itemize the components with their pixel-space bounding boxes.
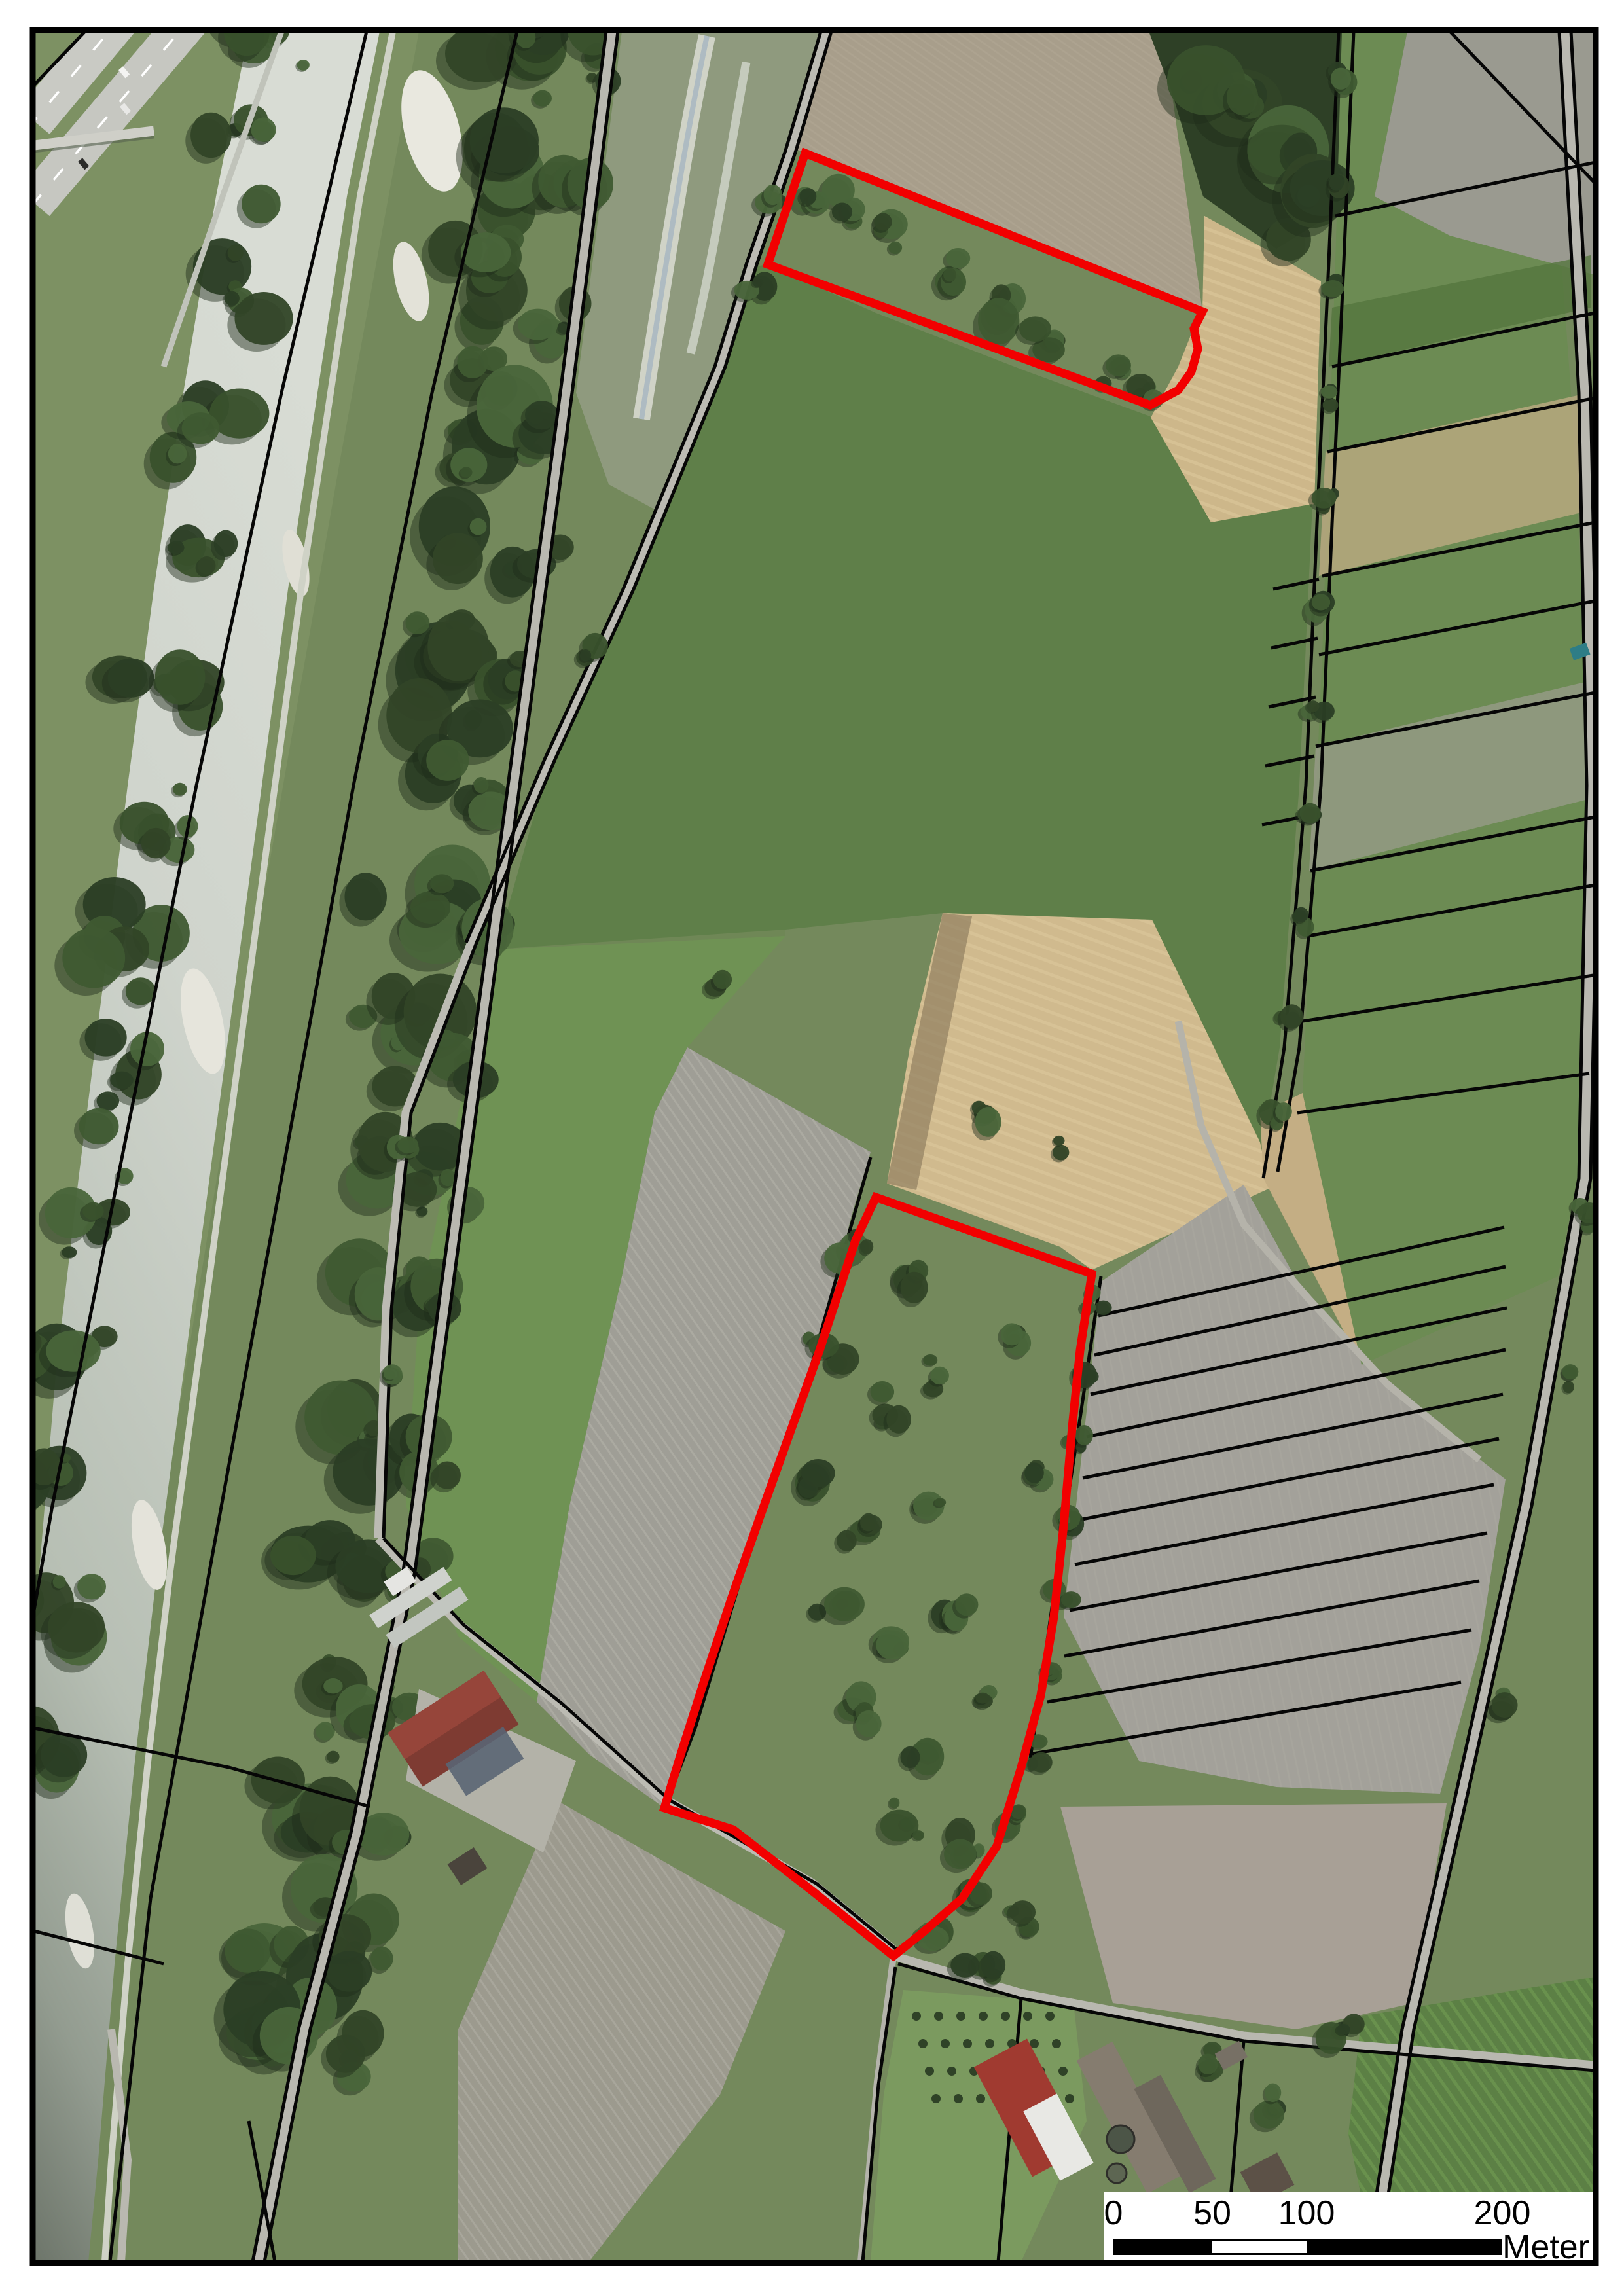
tree-canopy [1280, 1004, 1303, 1028]
slurry-tank [1107, 2125, 1134, 2153]
tree-canopy [141, 828, 171, 859]
tree-canopy [1254, 2101, 1284, 2129]
tree-canopy [946, 248, 970, 268]
tree-canopy [1322, 280, 1344, 297]
orchard-tree [934, 2012, 943, 2021]
tree-canopy [1265, 2084, 1281, 2102]
map-svg: 050100200 Meter [0, 0, 1624, 2295]
tree-canopy [944, 1839, 977, 1870]
tree-canopy [860, 1513, 876, 1532]
tree-canopy [912, 1830, 924, 1840]
tree-canopy [1094, 1301, 1111, 1315]
field-plowed-south [1060, 1803, 1447, 2029]
tree-canopy [1275, 1102, 1292, 1121]
page: 050100200 Meter [0, 0, 1624, 2295]
tree-canopy [923, 1354, 937, 1365]
tree-canopy [1323, 398, 1339, 412]
tree-canopy [426, 740, 469, 781]
orchard-tree [1052, 2039, 1061, 2048]
tree-canopy [713, 970, 732, 989]
tree-canopy [225, 1928, 270, 1972]
tree-canopy [1053, 1145, 1069, 1161]
tree-canopy [525, 401, 558, 429]
scalebar-bar [1113, 2239, 1502, 2255]
tree-canopy [190, 113, 232, 158]
tree-canopy [533, 90, 552, 107]
tree-canopy [935, 1498, 947, 1506]
tree-canopy [860, 1239, 873, 1254]
tree-canopy [77, 1574, 106, 1599]
orchard-tree [976, 2094, 985, 2103]
tree-canopy [981, 1951, 1006, 1979]
tree-canopy [901, 1746, 920, 1768]
tree-canopy [1312, 488, 1337, 509]
orchard-tree [985, 2039, 994, 2048]
tree-canopy [53, 1575, 66, 1589]
tree-canopy [457, 346, 488, 378]
tree-canopy [214, 530, 238, 557]
tree-canopy [955, 1593, 978, 1616]
tree-canopy [173, 783, 187, 796]
tree-canopy [155, 649, 206, 704]
slurry-tank [1107, 2163, 1127, 2183]
tree-canopy [889, 1798, 899, 1809]
tree-canopy [752, 279, 763, 287]
orchard-tree [912, 2012, 921, 2021]
tree-canopy [1019, 316, 1051, 342]
scalebar-tick-label: 100 [1278, 2194, 1335, 2232]
tree-canopy [97, 1091, 120, 1110]
tree-canopy [225, 291, 240, 306]
scalebar-tick-label: 0 [1104, 2194, 1123, 2232]
tree-canopy [242, 185, 280, 224]
tree-canopy [62, 928, 125, 988]
tree-canopy [397, 1136, 418, 1153]
tree-canopy [182, 412, 219, 444]
tree-canopy [580, 649, 591, 662]
tree-canopy [874, 213, 892, 230]
tree-canopy [1106, 354, 1131, 376]
orchard-tree [947, 2067, 956, 2076]
tree-canopy [251, 117, 276, 141]
tree-canopy [1001, 1323, 1023, 1345]
tree-canopy [1337, 2024, 1350, 2034]
tree-canopy [406, 611, 430, 634]
tree-canopy [46, 1330, 100, 1371]
tree-canopy [1075, 1425, 1093, 1445]
tree-canopy [430, 874, 454, 893]
tree-canopy [871, 1381, 895, 1402]
tree-canopy [1312, 594, 1330, 610]
orchard-tree [925, 2067, 934, 2076]
tree-canopy [876, 1631, 909, 1660]
scalebar: 050100200 Meter [1104, 2192, 1595, 2266]
orchard-tree [979, 2012, 988, 2021]
orchard-tree [1023, 2012, 1032, 2021]
tree-canopy [110, 1072, 134, 1089]
tree-canopy [1294, 907, 1308, 922]
tree-canopy [327, 1951, 372, 1991]
orchard-tree [1045, 2012, 1055, 2021]
tree-canopy [433, 533, 483, 584]
tree-canopy [943, 268, 956, 281]
tree-canopy [460, 467, 473, 477]
tree-canopy [930, 1367, 949, 1384]
tree-canopy [824, 1587, 865, 1621]
tree-canopy [978, 298, 1019, 344]
orchard-tree [956, 2012, 965, 2021]
tree-canopy [168, 541, 185, 554]
orchard-tree [1001, 2012, 1010, 2021]
tree-canopy [1061, 1591, 1081, 1608]
tree-canopy [975, 1107, 1001, 1137]
tree-canopy [410, 892, 450, 924]
tree-canopy [764, 185, 782, 205]
tree-canopy [370, 1947, 393, 1971]
tree-canopy [798, 1477, 818, 1498]
scalebar-tick-label: 50 [1193, 2194, 1231, 2232]
tree-canopy [1331, 68, 1351, 90]
tree-canopy [1321, 386, 1337, 399]
scalebar-segment [1113, 2241, 1212, 2253]
tree-canopy [270, 1536, 316, 1575]
tree-canopy [1024, 1462, 1044, 1483]
tree-canopy [1562, 1364, 1579, 1379]
tree-canopy [82, 1202, 104, 1220]
tree-canopy [126, 977, 156, 1005]
orchard-tree [931, 2094, 941, 2103]
tree-canopy [326, 2035, 365, 2073]
tree-canopy [837, 1530, 857, 1551]
tree-canopy [832, 203, 852, 221]
tree-canopy [1563, 1381, 1574, 1393]
tree-canopy [108, 659, 154, 698]
tree-canopy [1300, 803, 1321, 823]
tree-canopy [518, 309, 558, 340]
tree-canopy [1198, 2054, 1218, 2075]
tree-canopy [975, 1693, 989, 1704]
scalebar-tick-label: 200 [1474, 2194, 1531, 2232]
tree-canopy [41, 1733, 87, 1777]
tree-canopy [234, 292, 293, 345]
tree-canopy [470, 107, 539, 173]
scalebar-segment [1307, 2241, 1502, 2253]
tree-canopy [888, 242, 902, 254]
tree-canopy [1010, 1900, 1036, 1924]
tree-canopy [440, 1169, 455, 1186]
tree-canopy [323, 1678, 342, 1693]
tree-canopy [168, 444, 187, 463]
tree-canopy [856, 1710, 882, 1737]
tree-canopy [236, 0, 262, 14]
scalebar-segment [1212, 2241, 1307, 2253]
tree-canopy [470, 518, 487, 535]
tree-canopy [433, 1462, 460, 1489]
orchard-tree [1065, 2094, 1074, 2103]
tree-canopy [228, 244, 244, 261]
tree-canopy [1329, 175, 1344, 190]
tree-canopy [1030, 1752, 1052, 1773]
orchard-tree [1058, 2067, 1068, 2076]
tree-canopy [1307, 700, 1319, 712]
orchard-tree [918, 2039, 928, 2048]
orchard-tree [963, 2039, 972, 2048]
tree-canopy [384, 1368, 397, 1380]
tree-shadow [232, 0, 259, 16]
map-canvas[interactable]: 050100200 Meter [0, 0, 1601, 2266]
orchard-tree [954, 2094, 963, 2103]
tree-canopy [901, 1272, 928, 1303]
tree-canopy [84, 1019, 126, 1057]
tree-canopy [474, 777, 489, 793]
tree-canopy [800, 188, 817, 205]
orchard-tree [941, 2039, 950, 2048]
tree-canopy [198, 556, 215, 575]
tree-canopy [327, 1751, 339, 1763]
tree-canopy [297, 60, 310, 71]
tree-canopy [79, 1108, 119, 1144]
tree-canopy [48, 1602, 105, 1652]
tree-canopy [62, 1246, 77, 1258]
tree-canopy [344, 873, 386, 920]
tree-canopy [950, 1953, 979, 1978]
tree-canopy [886, 1405, 911, 1434]
tree-canopy [1053, 1136, 1064, 1146]
tree-canopy [193, 238, 251, 295]
tree-canopy [1492, 1692, 1518, 1718]
tree-canopy [1227, 79, 1258, 115]
